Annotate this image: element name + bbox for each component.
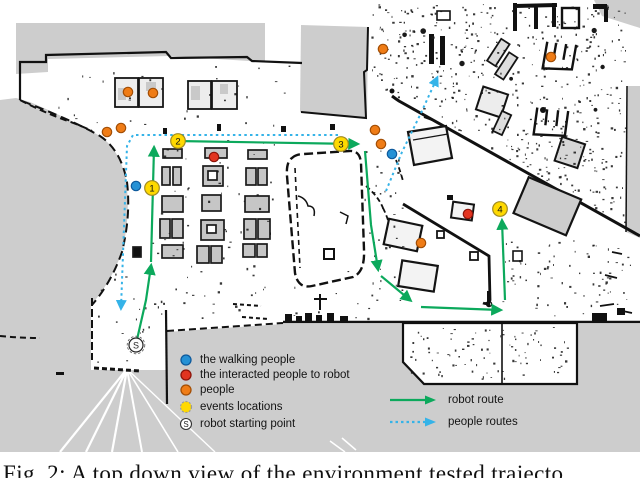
interacted-people-dot-icon	[179, 368, 193, 382]
svg-text:S: S	[183, 420, 188, 429]
person-dot	[148, 88, 157, 97]
figure-caption: Fig. 2: A top down view of the environme…	[3, 461, 640, 478]
legend-item-people: people	[179, 382, 350, 397]
people-dot-icon	[179, 383, 193, 397]
walking-people-dot-icon	[179, 353, 193, 367]
walking-person-dot	[387, 149, 396, 158]
person-dot	[416, 238, 425, 247]
person-dot	[546, 52, 555, 61]
legend-item-people-routes: people routes	[389, 415, 518, 429]
interacted-person-dot	[463, 209, 472, 218]
robot-start-icon: S	[179, 417, 193, 431]
person-dot	[376, 139, 385, 148]
map-legend: the walking people the interacted people…	[179, 352, 350, 431]
legend-label: robot starting point	[200, 418, 295, 430]
event-number: 1	[149, 183, 154, 194]
event-number: 4	[497, 204, 502, 215]
person-dot	[116, 123, 125, 132]
legend-item-robot-route: robot route	[389, 393, 518, 407]
person-dot	[123, 87, 132, 96]
legend-label: events locations	[200, 401, 282, 413]
interacted-person-dot	[209, 152, 218, 161]
person-dot	[378, 44, 387, 53]
legend-label: the walking people	[200, 354, 295, 366]
legend-item-robot-start: S robot starting point	[179, 416, 350, 431]
legend-item-interacted-people: the interacted people to robot	[179, 367, 350, 382]
legend-item-events-locations: events locations	[179, 399, 350, 414]
legend-label: people routes	[448, 416, 518, 428]
event-number: 3	[338, 139, 343, 150]
legend-label: people	[200, 384, 235, 396]
person-dot	[370, 125, 379, 134]
robot-start-symbol: S	[133, 340, 139, 350]
legend-label: the interacted people to robot	[200, 369, 350, 381]
person-dot	[102, 127, 111, 136]
people-routes-arrow-icon	[389, 416, 439, 428]
figure-2: 1234S the walking people the interacted …	[0, 0, 640, 478]
route-legend: robot route people routes	[389, 393, 518, 437]
robot-route-arrow-icon	[389, 394, 439, 406]
event-location-icon	[179, 400, 193, 414]
walking-person-dot	[131, 181, 140, 190]
event-number: 2	[175, 136, 180, 147]
legend-label: robot route	[448, 394, 504, 406]
legend-item-walking-people: the walking people	[179, 352, 350, 367]
